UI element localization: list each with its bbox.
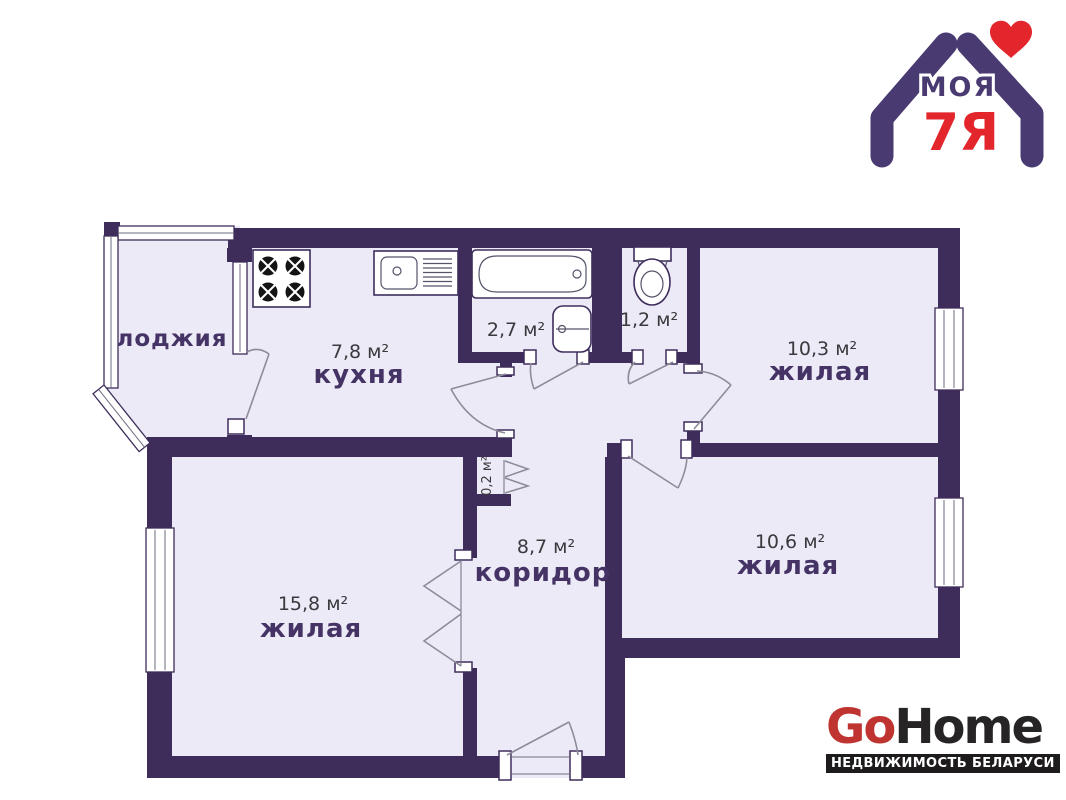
kitchen-sink-icon [374,251,458,295]
room-area-closet: 0,2 м² [480,456,495,496]
room-area-hallway: 8,7 м² [517,536,575,558]
floor-plan-page: лоджия 7,8 м² кухня 2,7 м² 1,2 м² 10,3 м… [0,0,1066,800]
window-living3 [935,498,963,587]
washbasin-icon [553,306,591,352]
room-area-wc: 1,2 м² [620,309,678,331]
bathtub-icon [472,250,592,298]
room-label-hallway: коридор [475,558,612,588]
gohome-tagline: НЕДВИЖИМОСТЬ БЕЛАРУСИ [826,754,1060,773]
gohome-logo: GoHome НЕДВИЖИМОСТЬ БЕЛАРУСИ [826,703,1036,773]
gohome-home: Home [894,699,1042,755]
room-label-living2: жилая [260,614,362,644]
gohome-wordmark: GoHome [826,703,1036,751]
window-living2 [146,528,174,672]
moya7ya-logo: МОЯ 7Я [868,18,1052,170]
window-balcony-block [233,262,247,354]
floor-bottom-strip [150,448,625,778]
toilet-icon [634,247,671,305]
logo-word: МОЯ [920,72,997,103]
logo-family: 7Я [923,103,999,163]
heart-icon [990,21,1032,58]
room-label-loggia: лоджия [117,326,228,352]
room-area-bathroom: 2,7 м² [487,319,545,341]
room-area-living2: 15,8 м² [278,593,348,615]
room-area-living3: 10,6 м² [755,531,825,553]
stove-icon [253,250,310,307]
gohome-go: Go [826,699,894,755]
room-label-kitchen: кухня [313,360,404,390]
window-living1 [935,308,963,390]
room-label-living1: жилая [769,357,871,387]
room-label-living3: жилая [737,551,839,581]
